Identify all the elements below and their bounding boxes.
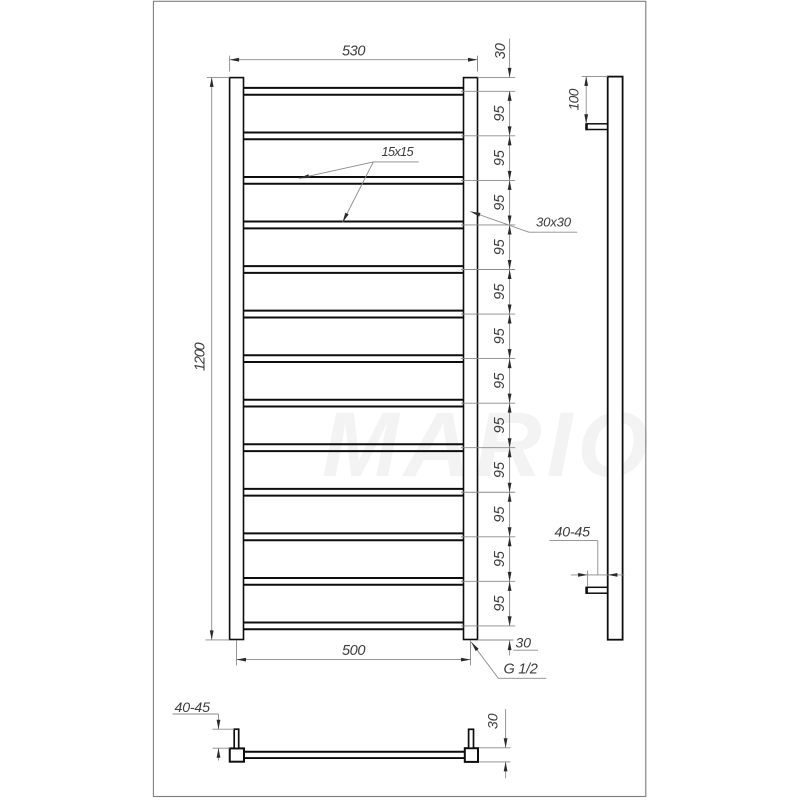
svg-text:95: 95 bbox=[492, 372, 508, 389]
svg-text:95: 95 bbox=[492, 595, 508, 612]
svg-text:30: 30 bbox=[493, 43, 509, 59]
svg-text:95: 95 bbox=[492, 238, 508, 255]
svg-text:95: 95 bbox=[492, 506, 508, 523]
svg-text:30: 30 bbox=[484, 713, 500, 729]
svg-text:95: 95 bbox=[492, 416, 508, 433]
svg-text:G 1/2: G 1/2 bbox=[504, 662, 538, 678]
svg-text:95: 95 bbox=[492, 550, 508, 567]
svg-text:15x15: 15x15 bbox=[382, 144, 415, 159]
svg-text:95: 95 bbox=[492, 461, 508, 478]
svg-text:40-45: 40-45 bbox=[555, 524, 591, 540]
svg-text:95: 95 bbox=[492, 283, 508, 300]
svg-text:100: 100 bbox=[567, 88, 582, 110]
svg-text:1200: 1200 bbox=[193, 342, 209, 371]
svg-text:95: 95 bbox=[492, 149, 508, 166]
svg-text:40-45: 40-45 bbox=[175, 700, 211, 716]
svg-text:530: 530 bbox=[342, 44, 365, 60]
svg-text:500: 500 bbox=[342, 643, 365, 659]
svg-text:95: 95 bbox=[492, 327, 508, 344]
svg-text:30x30: 30x30 bbox=[536, 215, 572, 230]
svg-text:95: 95 bbox=[492, 105, 508, 122]
svg-text:95: 95 bbox=[492, 194, 508, 211]
svg-text:30: 30 bbox=[516, 634, 532, 650]
